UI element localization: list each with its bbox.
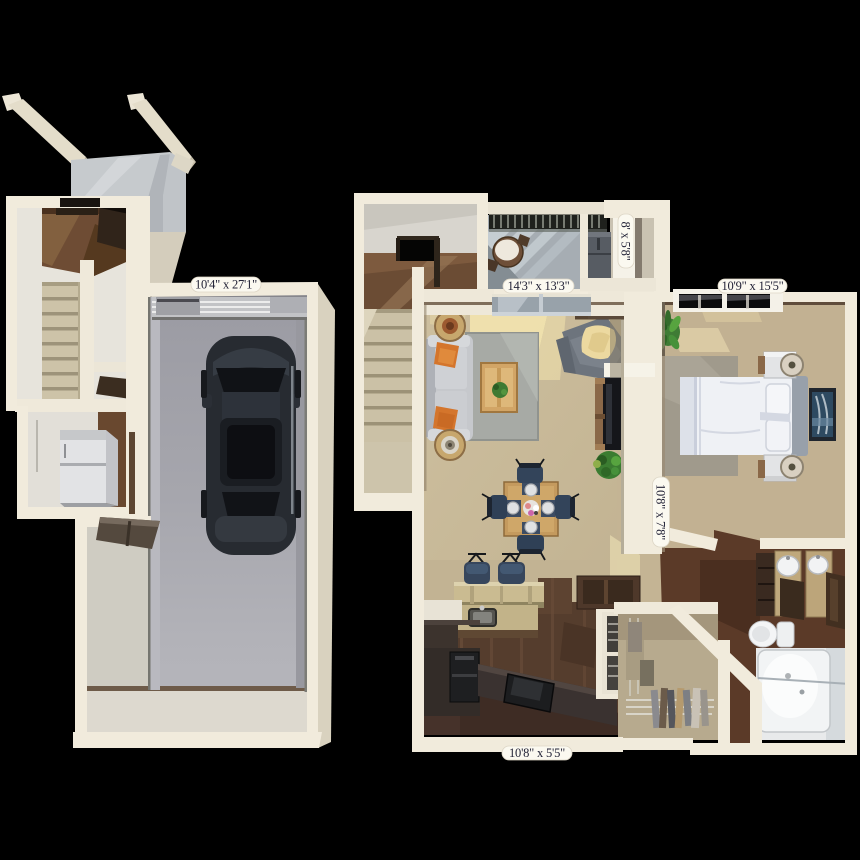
svg-text:8' x 5'8": 8' x 5'8" bbox=[619, 221, 633, 260]
svg-text:10'8" x 5'5": 10'8" x 5'5" bbox=[509, 746, 565, 760]
svg-text:10'9" x 15'5": 10'9" x 15'5" bbox=[721, 279, 783, 293]
svg-text:10'8" x 7'8": 10'8" x 7'8" bbox=[654, 484, 668, 540]
svg-text:10'4" x 27'1": 10'4" x 27'1" bbox=[195, 278, 257, 292]
svg-text:14'3" x 13'3": 14'3" x 13'3" bbox=[507, 279, 569, 293]
